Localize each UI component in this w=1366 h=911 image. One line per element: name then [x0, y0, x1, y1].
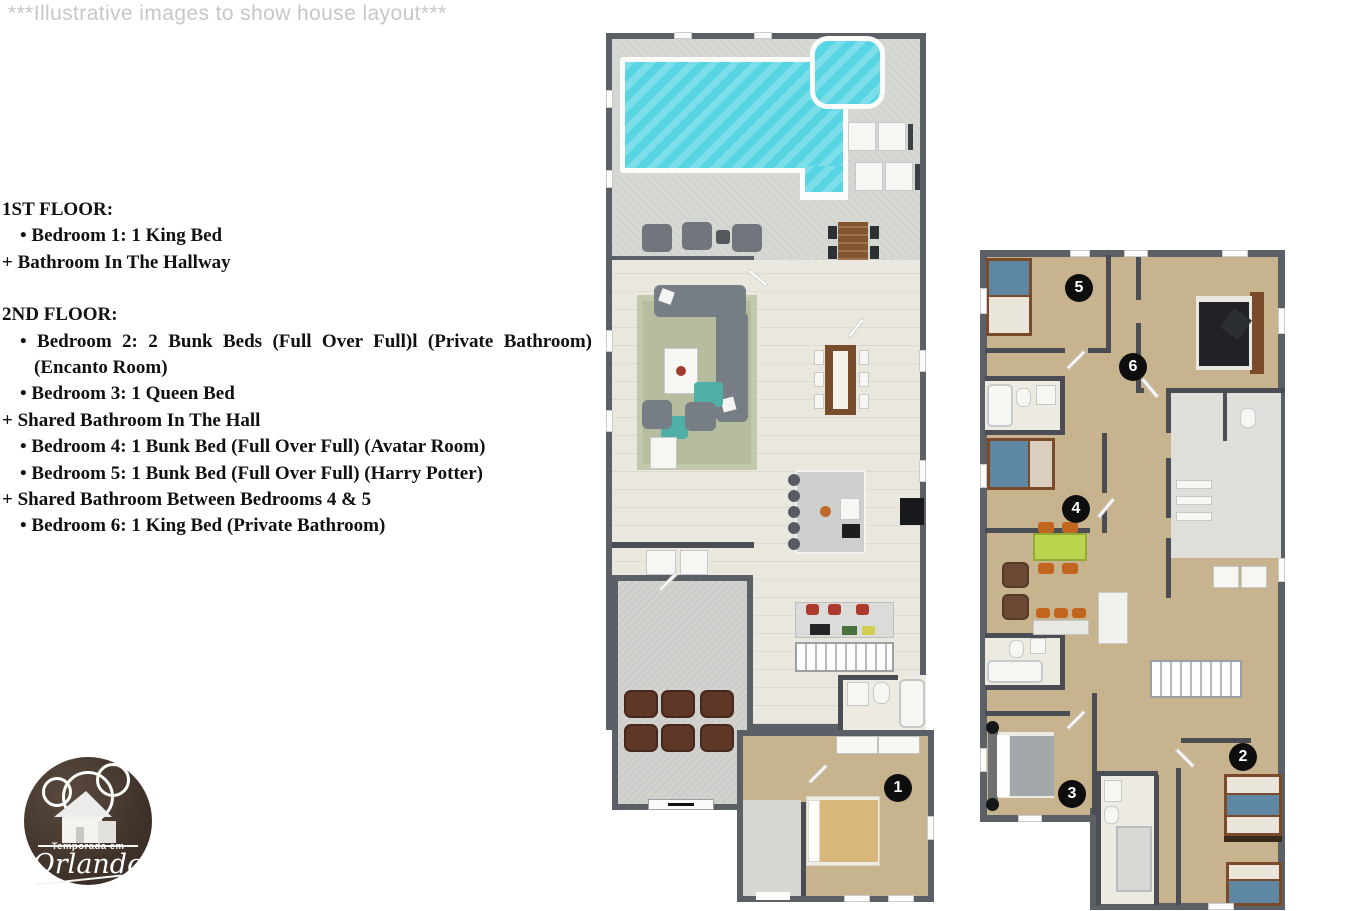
toilet — [1240, 408, 1256, 428]
window — [980, 748, 987, 772]
theater-recliner — [661, 690, 695, 718]
closet-shelf — [1176, 496, 1212, 505]
window — [674, 32, 692, 39]
bunk-mattress-blue — [1227, 795, 1279, 815]
wall — [1060, 638, 1065, 690]
floor-plan-first-floor: 1 — [604, 30, 934, 908]
lounger-frame — [908, 124, 913, 150]
house-roof-icon — [54, 791, 112, 817]
washer — [1213, 566, 1239, 588]
bedroom-4-line: • Bedroom 4: 1 Bunk Bed (Full Over Full)… — [0, 434, 600, 460]
shared-bath-45-line: + Shared Bathroom Between Bedrooms 4 & 5 — [0, 487, 600, 513]
staircase — [1150, 660, 1242, 698]
garage-door-handle — [668, 803, 694, 806]
temporada-em-orlando-logo: Temporada em Orlando — [24, 757, 152, 885]
dining-chair — [859, 350, 869, 365]
dining-chair — [814, 372, 824, 387]
window — [1208, 903, 1234, 910]
dining-chair — [859, 372, 869, 387]
laptop — [810, 624, 830, 635]
bathroom-wall — [838, 675, 843, 730]
window — [1124, 250, 1148, 257]
window — [919, 350, 926, 372]
desk-chair — [806, 604, 819, 615]
bathroom-sink — [1036, 385, 1056, 405]
window — [888, 895, 914, 902]
second-floor-heading: 2ND FLOOR: — [0, 302, 600, 328]
window — [1070, 250, 1090, 257]
lounger-frame — [915, 164, 920, 190]
armchair — [642, 400, 672, 429]
floor-info: 1ST FLOOR: • Bedroom 1: 1 King Bed + Bat… — [0, 197, 600, 540]
bathroom-sink — [1030, 638, 1046, 654]
game-chair — [1038, 522, 1054, 533]
room-marker-4: 4 — [1062, 495, 1090, 523]
bar-stool — [788, 474, 800, 486]
loft-armchair — [1002, 562, 1029, 588]
game-chair — [1062, 522, 1078, 533]
wall — [1102, 433, 1107, 493]
game-chair — [1038, 563, 1054, 574]
house-wing-icon — [98, 821, 116, 843]
bar-stool — [788, 506, 800, 518]
bathtub — [899, 679, 925, 728]
room-marker-3: 3 — [1058, 780, 1086, 808]
wall — [985, 348, 1065, 353]
bedroom-6-headboard — [1250, 292, 1264, 374]
bar-stool — [788, 490, 800, 502]
bar-stool — [788, 522, 800, 534]
bed-pillows — [808, 800, 820, 862]
window — [1278, 558, 1285, 582]
laundry-wall — [612, 542, 754, 548]
watermark-text: ***Illustrative images to show house lay… — [8, 2, 447, 26]
window — [844, 895, 870, 902]
closet-door-divider — [877, 736, 879, 754]
bunk-mattress-white — [989, 297, 1029, 333]
theater-recliner — [700, 690, 734, 718]
window — [980, 288, 987, 314]
lounge-chair — [855, 162, 883, 191]
wall — [1154, 775, 1159, 905]
toilet — [1104, 806, 1119, 824]
table-flowers — [676, 366, 686, 376]
spa-hot-tub — [810, 36, 885, 109]
dining-chair — [814, 394, 824, 409]
toilet — [873, 682, 890, 704]
side-cabinet — [650, 437, 677, 469]
desk-chair — [828, 604, 841, 615]
window — [927, 816, 934, 840]
theater-recliner — [661, 724, 695, 752]
island-sink — [840, 498, 860, 520]
entry-hall — [743, 800, 801, 896]
wc-wall — [1223, 393, 1227, 441]
theater-recliner — [700, 724, 734, 752]
first-floor-heading: 1ST FLOOR: — [0, 197, 600, 223]
shower — [1116, 826, 1152, 892]
bar-stool — [788, 538, 800, 550]
game-chair — [1062, 563, 1078, 574]
cooking-pot — [820, 506, 831, 517]
desk-chair — [1036, 608, 1050, 618]
bedroom-3-blanket — [1010, 736, 1054, 796]
armchair — [685, 402, 716, 431]
bathroom-vanity — [847, 682, 869, 706]
loft-table — [1098, 592, 1128, 644]
bathroom-sink — [1104, 780, 1122, 802]
lounge-chair — [885, 162, 913, 191]
room-marker-6-number: 6 — [1129, 358, 1138, 376]
bathroom-wall — [838, 675, 898, 680]
wall — [985, 430, 1065, 435]
dryer — [680, 550, 708, 575]
theater-recliner — [624, 724, 658, 752]
bathtub — [987, 660, 1043, 683]
wall — [1088, 348, 1111, 353]
bedroom-1-line: • Bedroom 1: 1 King Bed — [0, 223, 600, 249]
lounge-chair — [848, 122, 876, 151]
washer — [646, 550, 676, 575]
wall — [1136, 388, 1144, 393]
patio-chair — [732, 224, 762, 252]
room-marker-4-number: 4 — [1072, 500, 1081, 518]
logo-name: Orlando — [24, 849, 152, 880]
table-runner — [833, 351, 848, 409]
room-marker-3-number: 3 — [1068, 785, 1077, 803]
staircase — [795, 642, 894, 672]
bunk-mattress-blue — [989, 261, 1029, 295]
notepad — [862, 626, 875, 635]
window — [1222, 250, 1248, 257]
dining-chair — [814, 350, 824, 365]
loft-armchair — [1002, 594, 1029, 620]
window — [1018, 815, 1042, 822]
bunk-mattress-blue — [1229, 881, 1279, 903]
outdoor-dining-chair — [870, 246, 879, 259]
window — [606, 410, 613, 432]
bunk-mattress-white — [1227, 777, 1279, 793]
room-marker-6: 6 — [1119, 353, 1147, 381]
front-door — [756, 892, 790, 900]
bedroom-3-line: • Bedroom 3: 1 Queen Bed — [0, 381, 600, 407]
room-marker-1: 1 — [884, 774, 912, 802]
hallway-bath-line: + Bathroom In The Hallway — [0, 250, 600, 276]
window — [606, 170, 613, 188]
nightstand — [986, 721, 999, 734]
bunk-ladder — [1224, 836, 1282, 842]
dining-chair — [859, 394, 869, 409]
loft-desk — [1033, 620, 1089, 635]
window — [606, 90, 613, 108]
window — [606, 330, 613, 352]
window — [754, 32, 772, 39]
lounge-chair — [878, 122, 906, 151]
dryer — [1241, 566, 1267, 588]
bedroom-2-line-cont: (Encanto Room) — [0, 355, 600, 381]
bed-pillows — [997, 735, 1009, 797]
king-bed-blanket — [820, 800, 878, 862]
bunk-mattress-white — [1227, 817, 1279, 833]
toilet — [1009, 640, 1024, 658]
cooktop — [842, 524, 860, 538]
room-marker-2: 2 — [1229, 743, 1257, 771]
room-marker-1-number: 1 — [894, 779, 903, 797]
outdoor-dining-chair — [870, 226, 879, 239]
patio-chair — [642, 224, 672, 252]
bunk-mattress-white — [1229, 865, 1279, 879]
outdoor-dining-chair — [828, 226, 837, 239]
bedroom-5-line: • Bedroom 5: 1 Bunk Bed (Full Over Full)… — [0, 461, 600, 487]
floor-plan-second-floor: 5 6 4 — [978, 248, 1290, 910]
desk-chair — [1054, 608, 1068, 618]
closet-shelf — [1176, 512, 1212, 521]
game-table — [1033, 533, 1087, 561]
room-marker-2-number: 2 — [1239, 748, 1248, 766]
wall — [985, 685, 1065, 690]
wall — [1136, 255, 1141, 300]
desk-chair — [856, 604, 869, 615]
closet-shelf — [1176, 480, 1212, 489]
bedroom-6-line: • Bedroom 6: 1 King Bed (Private Bathroo… — [0, 513, 600, 539]
window — [1278, 308, 1285, 334]
room-marker-5-number: 5 — [1075, 279, 1084, 297]
wall — [1176, 768, 1181, 905]
window — [980, 464, 987, 488]
bathtub — [987, 384, 1013, 427]
bunk-mattress-blue — [990, 441, 1028, 487]
flyer-page: ***Illustrative images to show house lay… — [0, 0, 1366, 911]
outdoor-dining-chair — [828, 246, 837, 259]
room-marker-5: 5 — [1065, 274, 1093, 302]
refrigerator — [900, 498, 924, 525]
bedroom-2-line: • Bedroom 2: 2 Bunk Beds (Full Over Full… — [0, 329, 592, 355]
pool-extension — [805, 166, 843, 192]
window — [919, 460, 926, 482]
patio-chair — [682, 222, 712, 250]
theater-recliner — [624, 690, 658, 718]
nightstand — [986, 798, 999, 811]
desk-pad — [842, 626, 857, 635]
desk-chair — [1072, 608, 1086, 618]
wall — [1106, 255, 1111, 353]
toilet — [1016, 388, 1031, 407]
bunk-mattress-tan — [1030, 441, 1052, 487]
patio-side-table — [716, 230, 730, 244]
wall — [1060, 376, 1065, 434]
wall — [985, 711, 1070, 716]
shared-hall-bath-line: + Shared Bathroom In The Hall — [0, 408, 600, 434]
